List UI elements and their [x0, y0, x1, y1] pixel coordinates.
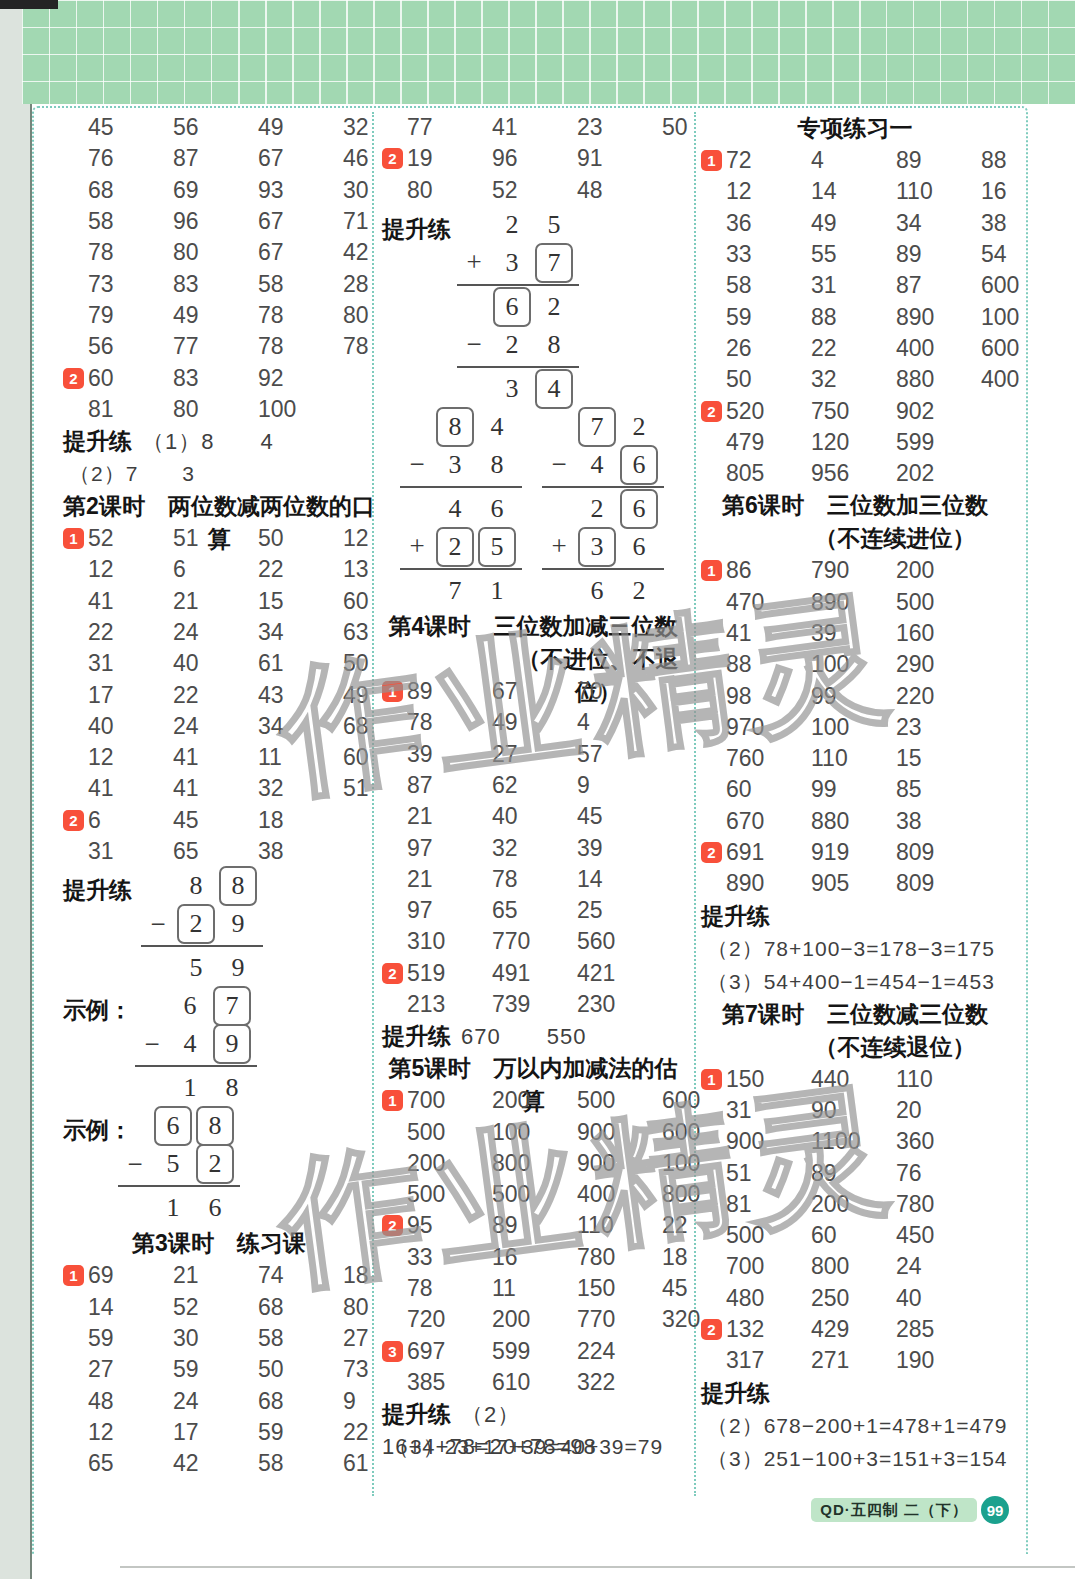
answer-value: 16 — [980, 178, 1065, 205]
answer-value: 780 — [895, 1191, 980, 1218]
boost-practice-values: （1）8 4 — [142, 429, 274, 454]
answer-value: 224 — [576, 1338, 661, 1365]
answer-value: 86 — [725, 557, 810, 584]
answer-row: 41211560 — [63, 586, 375, 617]
answer-value: 38 — [980, 210, 1065, 237]
answer-value: 89 — [895, 241, 980, 268]
answer-value: 74 — [257, 1262, 342, 1289]
operator-sign: − — [118, 1149, 152, 1180]
answer-value: 902 — [895, 398, 980, 425]
equals-rule — [457, 282, 579, 288]
answer-row: 200800900100 — [382, 1148, 684, 1179]
answer-value: 700 — [725, 1253, 810, 1280]
answer-value: 670 — [725, 808, 810, 835]
answer-value: 59 — [87, 1325, 172, 1352]
answer-value: 100 — [257, 396, 342, 423]
answer-value: 67 — [257, 208, 342, 235]
answer-value: 77 — [406, 114, 491, 141]
page-left-edge — [0, 0, 32, 1579]
answer-row: 12411160 — [63, 742, 375, 773]
answer-value: 600 — [980, 272, 1065, 299]
answer-value: 19 — [406, 145, 491, 172]
answer-row: 67088038 — [701, 806, 1009, 837]
answer-value: 23 — [576, 114, 661, 141]
digit: 8 — [476, 450, 518, 480]
answer-row: 217814 — [382, 864, 684, 895]
answer-value: 51 — [725, 1160, 810, 1187]
answer-value: 50 — [725, 366, 810, 393]
boxed-digit: 6 — [154, 1106, 192, 1146]
boxed-digit: 6 — [493, 287, 531, 327]
answer-value: 60 — [725, 776, 810, 803]
answer-value: 970 — [725, 714, 810, 741]
answer-value: 78 — [87, 239, 172, 266]
answer-value: 4 — [576, 709, 661, 736]
answer-row: 50060450 — [701, 1220, 1009, 1251]
answer-row: 78494 — [382, 707, 684, 738]
answer-value: 6 — [172, 556, 257, 583]
answer-row: 4824689 — [63, 1385, 375, 1416]
answer-value: 100 — [810, 714, 895, 741]
answer-value: 200 — [810, 1191, 895, 1218]
lesson-header: 专项练习一 — [701, 112, 1009, 145]
answer-row: 5032880400 — [701, 364, 1009, 395]
answer-value: 78 — [257, 302, 342, 329]
problem-number-badge: 2 — [382, 963, 403, 984]
boxed-digit: 8 — [219, 866, 257, 906]
answer-value: 62 — [491, 772, 576, 799]
answer-row: 316538 — [63, 836, 375, 867]
answer-value: 73 — [87, 271, 172, 298]
answer-value: 12 — [87, 1419, 172, 1446]
digit: 9 — [217, 953, 259, 983]
answer-value: 24 — [172, 619, 257, 646]
digit: 3 — [434, 450, 476, 480]
digit: 6 — [618, 445, 660, 485]
answer-value: 97 — [406, 897, 491, 924]
vertical-row: 59 — [141, 949, 375, 987]
answer-value: 22 — [257, 556, 342, 583]
digit: 3 — [491, 374, 533, 404]
answer-value: 31 — [810, 272, 895, 299]
badge-slot: 2 — [701, 1319, 725, 1340]
answer-value: 56 — [87, 333, 172, 360]
answer-value: 68 — [257, 1388, 342, 1415]
answer-value: 310 — [406, 928, 491, 955]
answer-value: 65 — [172, 838, 257, 865]
boxed-digit: 4 — [535, 369, 573, 409]
answer-row: 890905809 — [701, 868, 1009, 899]
answer-row: 59305827 — [63, 1323, 375, 1354]
answer-value: 41 — [491, 114, 576, 141]
answer-value: 81 — [87, 396, 172, 423]
boost-practice-label: 提升练 — [63, 875, 132, 906]
digit: 8 — [194, 1106, 236, 1146]
answer-value: 65 — [87, 1450, 172, 1477]
answer-value: 52 — [491, 177, 576, 204]
vertical-calculation: 67−4918 — [135, 987, 375, 1107]
lesson-header-subtitle: （不连续退位） — [701, 1031, 1009, 1064]
answer-value: 770 — [491, 928, 576, 955]
answer-value: 890 — [725, 870, 810, 897]
problem-number-badge: 1 — [701, 1069, 722, 1090]
answer-value: 78 — [406, 1275, 491, 1302]
boxed-digit: 5 — [478, 527, 516, 567]
boxed-digit: 6 — [620, 445, 658, 485]
answer-value: 52 — [87, 525, 172, 552]
badge-slot: 2 — [63, 368, 87, 389]
equals-rule — [457, 364, 579, 370]
answer-value: 38 — [257, 838, 342, 865]
boxed-digit: 7 — [578, 407, 616, 447]
answer-row: 169217418 — [63, 1260, 375, 1291]
boost-practice-label: 提升练 — [63, 428, 132, 454]
answer-value: 500 — [406, 1119, 491, 1146]
answer-row: 87629 — [382, 770, 684, 801]
boost-practice-line: 提升练 — [701, 1377, 1009, 1409]
solution-line: （2）78+100−3=178−3=175 — [701, 932, 1009, 965]
answer-value: 90 — [810, 1097, 895, 1124]
answer-value: 77 — [172, 333, 257, 360]
answer-row: 79497880 — [63, 300, 375, 331]
answer-value: 560 — [576, 928, 661, 955]
boost-practice-line: 提升练（2）16+4+78=20+78=98 — [382, 1398, 684, 1430]
boxed-digit: 2 — [436, 527, 474, 567]
answer-rows: 1724898812141101636493438335589545831876… — [701, 145, 1009, 489]
vertical-calculation-block: 示例：68−5216 — [63, 1107, 375, 1227]
answer-value: 720 — [406, 1306, 491, 1333]
answer-value: 500 — [406, 1181, 491, 1208]
answer-value: 89 — [491, 1212, 576, 1239]
answer-row: 1896770 — [382, 676, 684, 707]
answer-value: 500 — [491, 1181, 576, 1208]
answer-row: 2199691 — [382, 143, 684, 174]
digit: 4 — [576, 450, 618, 480]
vertical-calculation: 72−4626+3662 — [542, 408, 664, 610]
answer-value: 24 — [172, 1388, 257, 1415]
answer-value: 599 — [895, 429, 980, 456]
answer-row: 2519491421 — [382, 958, 684, 989]
badge-slot: 1 — [701, 560, 725, 581]
answer-value: 805 — [725, 460, 810, 487]
vertical-calculation-block: 提升练25+3762−2834 — [382, 206, 684, 408]
answer-value: 88 — [810, 304, 895, 331]
digit: 8 — [533, 330, 575, 360]
lesson-header: 第5课时 万以内加减法的估算 — [382, 1052, 684, 1085]
answer-value: 67 — [491, 678, 576, 705]
lesson-header-title: 第3课时 练习课 — [63, 1227, 375, 1260]
vertical-row: +37 — [457, 244, 684, 282]
answer-value: 900 — [576, 1119, 661, 1146]
answer-value: 450 — [895, 1222, 980, 1249]
vertical-row: 16 — [118, 1189, 375, 1227]
answer-value: 17 — [172, 1419, 257, 1446]
answer-value: 905 — [810, 870, 895, 897]
answer-rows: 1896770784943927578762921404597323921781… — [382, 676, 684, 1020]
answer-value: 78 — [257, 333, 342, 360]
answer-rows: 1692174181452688059305827275950734824689… — [63, 1260, 375, 1479]
answer-value: 32 — [257, 775, 342, 802]
answer-value: 80 — [172, 239, 257, 266]
operator-sign: − — [542, 449, 576, 480]
answer-value: 45 — [576, 803, 661, 830]
digit: 1 — [476, 576, 518, 606]
digit: 4 — [434, 494, 476, 524]
answer-value: 41 — [172, 744, 257, 771]
digit: 8 — [434, 407, 476, 447]
answer-value: 65 — [491, 897, 576, 924]
answer-value: 429 — [810, 1316, 895, 1343]
answer-value: 202 — [895, 460, 980, 487]
answer-value: 890 — [810, 589, 895, 616]
answer-value: 39 — [576, 835, 661, 862]
answer-value: 39 — [406, 741, 491, 768]
lesson-header: 第4课时 三位数加减三位数（不进位、不退位） — [382, 610, 684, 676]
answer-value: 230 — [576, 991, 661, 1018]
answer-value: 15 — [895, 745, 980, 772]
answer-value: 21 — [406, 866, 491, 893]
answer-row: 720200770320 — [382, 1304, 684, 1335]
vertical-calculation: 25+3762−2834 — [457, 206, 684, 408]
answer-value: 72 — [725, 147, 810, 174]
answer-row: 385610322 — [382, 1367, 684, 1398]
answer-value: 87 — [406, 772, 491, 799]
lesson-header: 第2课时 两位数减两位数的口算 — [63, 490, 375, 523]
answer-value: 421 — [576, 960, 661, 987]
answer-value: 600 — [980, 335, 1065, 362]
answer-row: 392757 — [382, 738, 684, 769]
answer-value: 610 — [491, 1369, 576, 1396]
answer-value: 14 — [576, 866, 661, 893]
answer-row: 1700200500600 — [382, 1085, 684, 1116]
boost-practice-line: 提升练（1）8 4 — [63, 425, 375, 457]
answer-value: 21 — [406, 803, 491, 830]
answer-row: 479120599 — [701, 427, 1009, 458]
answer-value: 58 — [257, 1450, 342, 1477]
digit: 7 — [211, 986, 253, 1026]
answer-row: 73835828 — [63, 268, 375, 299]
problem-number-badge: 2 — [701, 1319, 722, 1340]
vertical-calculation-block: 提升练88−2959 — [63, 867, 375, 987]
answer-value: 97 — [406, 835, 491, 862]
answer-value: 24 — [172, 713, 257, 740]
answer-value: 30 — [172, 1325, 257, 1352]
digit: 8 — [217, 866, 259, 906]
answer-row: 2132429285 — [701, 1314, 1009, 1345]
digit: 2 — [618, 412, 660, 442]
badge-slot: 2 — [63, 810, 87, 831]
answer-value: 880 — [810, 808, 895, 835]
answer-value: 16 — [491, 1244, 576, 1271]
digit: 7 — [533, 243, 575, 283]
answer-value: 12 — [87, 556, 172, 583]
boxed-digit: 7 — [535, 243, 573, 283]
answer-value: 11 — [257, 744, 342, 771]
lesson-header-title: 第4课时 三位数加减三位数 — [382, 610, 684, 643]
answer-row: 2691919809 — [701, 837, 1009, 868]
answer-value: 440 — [810, 1066, 895, 1093]
digit: 8 — [211, 1073, 253, 1103]
answer-value: 83 — [172, 365, 257, 392]
answer-value: 520 — [725, 398, 810, 425]
answer-row: 31406150 — [63, 648, 375, 679]
badge-slot: 2 — [382, 1215, 406, 1236]
answer-value: 470 — [725, 589, 810, 616]
answer-value: 34 — [257, 713, 342, 740]
answer-column-3: 专项练习一17248988121411016364934383355895458… — [701, 112, 1009, 1475]
answer-value: 220 — [895, 683, 980, 710]
answer-row: 14526880 — [63, 1292, 375, 1323]
vertical-row: 25 — [457, 206, 684, 244]
answer-row: 9899220 — [701, 680, 1009, 711]
lesson-header-title: 第7课时 三位数减三位数 — [701, 998, 1009, 1031]
answer-value: 26 — [725, 335, 810, 362]
answer-row: 331678018 — [382, 1242, 684, 1273]
digit: 4 — [169, 1029, 211, 1059]
digit: 5 — [175, 953, 217, 983]
badge-slot: 2 — [701, 401, 725, 422]
answer-value: 200 — [491, 1087, 576, 1114]
answer-row: 56777878 — [63, 331, 375, 362]
answer-row: 41413251 — [63, 773, 375, 804]
badge-slot: 1 — [63, 1265, 87, 1286]
digit: 9 — [217, 909, 259, 939]
answer-value: 60 — [87, 365, 172, 392]
page-corner-shadow — [0, 0, 58, 9]
answer-row: 9001100360 — [701, 1126, 1009, 1157]
vertical-row: 62 — [457, 288, 684, 326]
answer-value: 67 — [257, 239, 342, 266]
answer-value: 400 — [576, 1181, 661, 1208]
digit: 6 — [476, 494, 518, 524]
answer-value: 52 — [172, 1294, 257, 1321]
answer-value: 739 — [491, 991, 576, 1018]
vertical-calculation-pair: 84−3846+257172−4626+3662 — [382, 408, 684, 610]
digit: 2 — [434, 527, 476, 567]
digit: 4 — [533, 369, 575, 409]
answer-value: 81 — [725, 1191, 810, 1218]
operator-sign: − — [457, 329, 491, 360]
edition-label: QD·五四制 二（下） — [811, 1498, 977, 1522]
answer-value: 160 — [895, 620, 980, 647]
answer-value: 691 — [725, 839, 810, 866]
boost-practice-label: 提升练 — [382, 1401, 451, 1427]
operator-sign: + — [457, 247, 491, 278]
equals-rule — [400, 484, 522, 490]
answer-value: 98 — [725, 683, 810, 710]
answer-row: 2622400600 — [701, 333, 1009, 364]
digit: 8 — [175, 871, 217, 901]
answer-row: 500500400800 — [382, 1179, 684, 1210]
answer-value: 385 — [406, 1369, 491, 1396]
answer-value: 69 — [87, 1262, 172, 1289]
answer-value: 25 — [576, 897, 661, 924]
answer-value: 100 — [491, 1119, 576, 1146]
answer-value: 22 — [172, 682, 257, 709]
badge-slot: 1 — [63, 528, 87, 549]
badge-slot: 1 — [382, 1090, 406, 1111]
answer-value: 58 — [725, 272, 810, 299]
answer-value: 809 — [895, 839, 980, 866]
answer-value: 200 — [406, 1150, 491, 1177]
problem-number-badge: 2 — [63, 810, 84, 831]
operator-sign: + — [400, 531, 434, 562]
answer-value: 42 — [172, 1450, 257, 1477]
answer-row: 36493438 — [701, 208, 1009, 239]
answer-row: 973239 — [382, 832, 684, 863]
digit: 9 — [211, 1024, 253, 1064]
vertical-row: −29 — [141, 905, 375, 943]
problem-number-badge: 2 — [63, 368, 84, 389]
boxed-digit: 2 — [177, 904, 215, 944]
digit: 7 — [434, 576, 476, 606]
answer-value: 14 — [810, 178, 895, 205]
digit: 4 — [476, 412, 518, 442]
vertical-row: 67 — [135, 987, 375, 1025]
answer-value: 68 — [87, 177, 172, 204]
answer-rows: 4556493276876746686993305896677178806742… — [63, 112, 375, 425]
page-number-badge: 99 — [981, 1496, 1009, 1524]
answer-row: 2608392 — [63, 362, 375, 393]
boxed-digit: 8 — [436, 407, 474, 447]
answer-value: 89 — [810, 1160, 895, 1187]
answer-value: 27 — [87, 1356, 172, 1383]
badge-slot: 2 — [701, 842, 725, 863]
vertical-calculation: 88−2959 — [141, 867, 375, 987]
answer-value: 55 — [810, 241, 895, 268]
equals-rule — [141, 943, 263, 949]
answer-row: 70080024 — [701, 1251, 1009, 1282]
answer-row: 121411016 — [701, 176, 1009, 207]
answer-row: 317271190 — [701, 1345, 1009, 1376]
answer-value: 770 — [576, 1306, 661, 1333]
problem-number-badge: 1 — [382, 1090, 403, 1111]
answer-value: 50 — [257, 525, 342, 552]
digit: 7 — [576, 407, 618, 447]
problem-number-badge: 1 — [701, 150, 722, 171]
answer-value: 39 — [810, 620, 895, 647]
boost-practice-line: 提升练670 550 — [382, 1020, 684, 1052]
answer-row: 609985 — [701, 774, 1009, 805]
answer-column-1: 4556493276876746686993305896677178806742… — [63, 112, 375, 1479]
lesson-header-title: 专项练习一 — [701, 112, 1009, 145]
answer-value: 41 — [172, 775, 257, 802]
digit: 6 — [618, 489, 660, 529]
digit: 6 — [491, 287, 533, 327]
answer-row: 186790200 — [701, 555, 1009, 586]
answer-row: 78806742 — [63, 237, 375, 268]
lesson-header: 第7课时 三位数减三位数（不连续退位） — [701, 998, 1009, 1064]
answer-value: 14 — [87, 1294, 172, 1321]
answer-row: 45564932 — [63, 112, 375, 143]
boxed-digit: 6 — [620, 489, 658, 529]
answer-value: 49 — [491, 709, 576, 736]
boost-practice-label: 提升练 — [382, 214, 451, 245]
answer-value: 91 — [576, 145, 661, 172]
answer-row: 214045 — [382, 801, 684, 832]
answer-value: 479 — [725, 429, 810, 456]
answer-value: 1100 — [810, 1128, 895, 1155]
digit: 2 — [175, 904, 217, 944]
vertical-row: −52 — [118, 1145, 375, 1183]
answer-value: 21 — [172, 588, 257, 615]
answer-value: 58 — [87, 208, 172, 235]
answer-row: 518976 — [701, 1157, 1009, 1188]
answer-value: 190 — [895, 1347, 980, 1374]
solution-line: （3）23+17+39=40+39=79 — [382, 1430, 684, 1463]
vertical-row: 26 — [542, 490, 664, 528]
digit: 3 — [576, 527, 618, 567]
